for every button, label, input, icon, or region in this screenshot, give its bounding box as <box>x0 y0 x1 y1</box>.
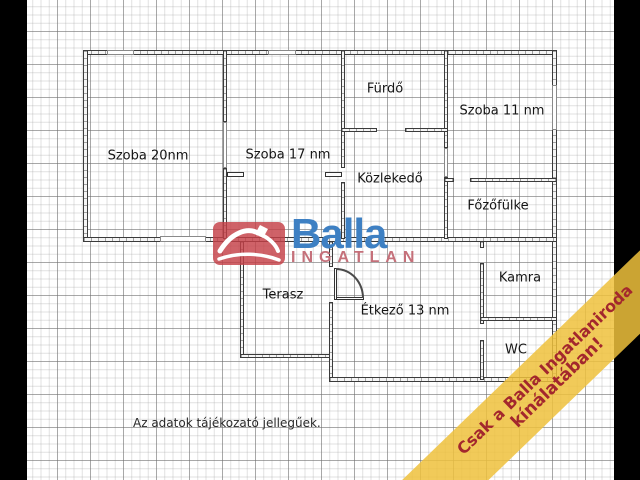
wall-top <box>83 50 557 55</box>
door-leaf <box>227 172 244 177</box>
wall-kamra-left-b <box>480 263 484 324</box>
wall-kamra-left-a <box>480 241 484 248</box>
logo-badge <box>213 222 285 265</box>
wall-etkezo-left-lower <box>329 302 333 382</box>
disclaimer-note: Az adatok tájékozató jellegűek. <box>133 416 321 430</box>
wall-divider-a-upper <box>223 50 227 122</box>
room-label-fozofulke: Főzőfülke <box>467 199 528 214</box>
wall-szoba11-bottom-right <box>470 178 557 182</box>
window <box>552 85 557 130</box>
wall-divider-c-lower <box>444 177 448 239</box>
room-label-szoba-20: Szoba 20nm <box>108 149 189 164</box>
wall-divider-b-upper <box>341 50 345 168</box>
wall-terasz-bottom <box>240 354 333 358</box>
room-label-etkezo: Étkező 13 nm <box>361 304 450 319</box>
room-label-furdo: Fürdő <box>367 82 403 97</box>
room-label-szoba-17: Szoba 17 nm <box>246 148 331 163</box>
wall-furdo-bottom-right <box>405 128 448 132</box>
floor-plan-screenshot: Szoba 20nm Szoba 17 nm Fürdő Szoba 11 nm… <box>0 0 640 480</box>
window <box>160 236 206 242</box>
right-black-bar <box>614 0 640 480</box>
window <box>107 50 134 55</box>
wall-furdo-bottom-left <box>341 128 377 132</box>
wall-divider-c-upper <box>444 50 448 148</box>
door-opening <box>223 122 227 168</box>
door-leaf <box>325 172 342 177</box>
room-label-kamra: Kamra <box>499 271 541 286</box>
door-opening <box>444 148 448 177</box>
house-roof-icon <box>213 222 285 265</box>
left-black-bar <box>0 0 27 480</box>
brand-subtitle: INGATLAN <box>291 249 420 267</box>
room-label-terasz: Terasz <box>263 288 304 303</box>
wall-kamra-bottom <box>480 317 557 321</box>
wall-left <box>83 50 88 241</box>
room-label-kozlekedo: Közlekedő <box>357 172 423 187</box>
wall-szoba11-bottom-left <box>444 178 454 182</box>
window <box>268 50 296 55</box>
room-label-wc: WC <box>505 343 527 358</box>
wall-wc-left <box>480 340 484 380</box>
room-label-szoba-11: Szoba 11 nm <box>460 104 545 119</box>
